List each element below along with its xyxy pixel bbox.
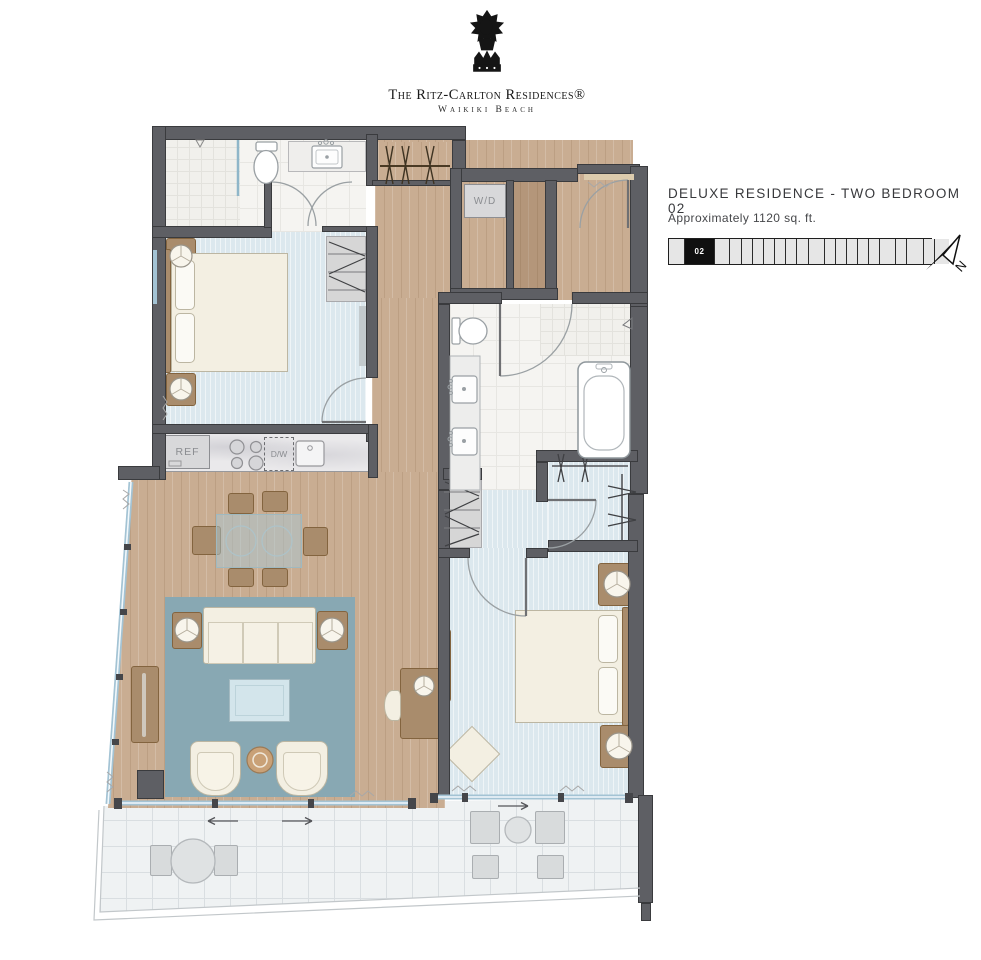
wall-right-upper	[630, 166, 648, 308]
sofa	[203, 607, 316, 664]
keyplan-unit	[809, 239, 825, 264]
keyplan-unit	[869, 239, 880, 264]
wall-bed2-kitchen	[152, 424, 378, 434]
wall-wd-top	[452, 168, 578, 182]
keyplan-unit	[786, 239, 797, 264]
north-compass-arrow: N	[922, 228, 974, 280]
bedroom2-pillow-1	[175, 260, 195, 310]
armchair-2	[276, 741, 328, 796]
lanai-terrace-floor	[100, 795, 656, 925]
keyplan-unit	[715, 239, 730, 264]
armchair-1	[190, 741, 241, 796]
terrace-chair	[214, 845, 238, 876]
walkin-closet-floor	[548, 462, 632, 542]
media-console-detail	[142, 673, 146, 737]
wall-bed2-right	[366, 226, 378, 378]
keyplan-unit	[730, 239, 742, 264]
wall-vestibule-bottom-left	[438, 548, 470, 558]
wall-kitchen-right	[368, 424, 378, 478]
terrace-ottoman	[472, 855, 499, 879]
floorplan-page: The Ritz-Carlton Residences® Waikiki Bea…	[0, 0, 981, 960]
terrace-chair	[535, 811, 565, 844]
wall-corridor-right	[438, 304, 450, 490]
ritz-carlton-lion-crown-logo	[455, 8, 519, 80]
wall-walkin-bottom	[548, 540, 638, 552]
coffee-table-inner	[235, 685, 284, 716]
unit-area: Approximately 1120 sq. ft.	[668, 211, 816, 225]
wall-walkin-left	[536, 462, 548, 502]
armchair-seat	[283, 752, 321, 791]
brand-block: The Ritz-Carlton Residences® Waikiki Bea…	[370, 8, 604, 115]
keyplan-unit	[858, 239, 869, 264]
refrigerator-label: REF	[165, 435, 210, 469]
wall-walkin-top	[536, 450, 638, 462]
keyplan-unit	[896, 239, 907, 264]
wall-mbath-top-right	[572, 292, 648, 304]
wall-top	[152, 126, 466, 140]
master-pillow-1	[598, 615, 618, 663]
sofa-cushion	[243, 622, 278, 664]
coffee-table	[229, 679, 290, 722]
keyplan-unit	[742, 239, 753, 264]
dining-table	[216, 514, 302, 568]
structural-column	[137, 770, 164, 799]
dining-chair	[228, 493, 254, 514]
desk-chair	[384, 690, 401, 721]
media-console	[131, 666, 159, 743]
keyplan-unit	[825, 239, 836, 264]
dining-chair	[303, 527, 328, 556]
wall-mbath-top-left	[438, 292, 502, 304]
wall-wd-left	[450, 168, 462, 300]
washer-dryer-label: W/D	[464, 184, 506, 218]
wall-master-left	[438, 490, 450, 798]
wall-coat-closet-bottom	[372, 180, 454, 186]
wall-bath2-bed2	[152, 226, 272, 238]
sofa-side-table-2	[317, 611, 348, 650]
coat-closet-floor	[378, 142, 452, 182]
wall-column-tip	[641, 903, 651, 921]
dining-chair	[262, 568, 288, 587]
wall-bath2-right	[366, 134, 378, 186]
terrace-chair	[150, 845, 172, 876]
wall-vestibule-bottom-right	[526, 548, 548, 558]
dining-chair	[228, 568, 254, 587]
wall-bath2-halfwall	[322, 226, 368, 232]
keyplan-unit	[836, 239, 847, 264]
master-shower-floor	[540, 304, 630, 356]
dining-chair	[262, 491, 288, 512]
wall-bath2-stub	[264, 180, 272, 228]
keyplan-unit	[880, 239, 896, 264]
sofa-cushion	[208, 622, 243, 664]
bedroom2-nightstand-2	[166, 373, 196, 406]
wall-jut	[118, 466, 160, 480]
armchair-seat	[197, 752, 234, 791]
keyplan-unit	[753, 239, 764, 264]
wall-linen-top	[443, 468, 482, 480]
wall-wd-divider	[506, 180, 514, 290]
keyplan-unit	[775, 239, 786, 264]
keyplan-unit	[764, 239, 775, 264]
wall-hallcloset-right	[545, 180, 557, 300]
keyplan-unit	[797, 239, 809, 264]
master-pillow-2	[598, 667, 618, 715]
brand-name: The Ritz-Carlton Residences®	[370, 87, 604, 104]
bedroom2-mirror	[359, 306, 366, 366]
bathroom2-vanity-counter	[288, 141, 366, 172]
bedroom2-pillow-2	[175, 313, 195, 363]
keyplan-unit	[669, 239, 685, 264]
wall-column-lower	[638, 795, 653, 903]
corridor-floor	[372, 298, 445, 474]
keyplan-unit-active: 02	[685, 239, 715, 264]
desk	[400, 668, 441, 739]
dishwasher-label: D/W	[263, 437, 295, 471]
brand-location: Waikiki Beach	[370, 105, 604, 115]
sofa-cushion	[278, 622, 313, 664]
hall-closet-floor	[514, 180, 545, 290]
terrace-chair	[470, 811, 500, 844]
keyplan-unit	[847, 239, 858, 264]
entry-door-header	[584, 174, 634, 180]
terrace-ottoman	[537, 855, 564, 879]
keyplan-strip: 02	[668, 238, 932, 265]
wall-right-bath	[630, 306, 648, 494]
sofa-side-table-1	[172, 612, 202, 649]
bathroom2-shower-floor	[165, 140, 240, 232]
bedroom2-closet-floor	[326, 236, 366, 302]
wall-left	[152, 126, 166, 444]
